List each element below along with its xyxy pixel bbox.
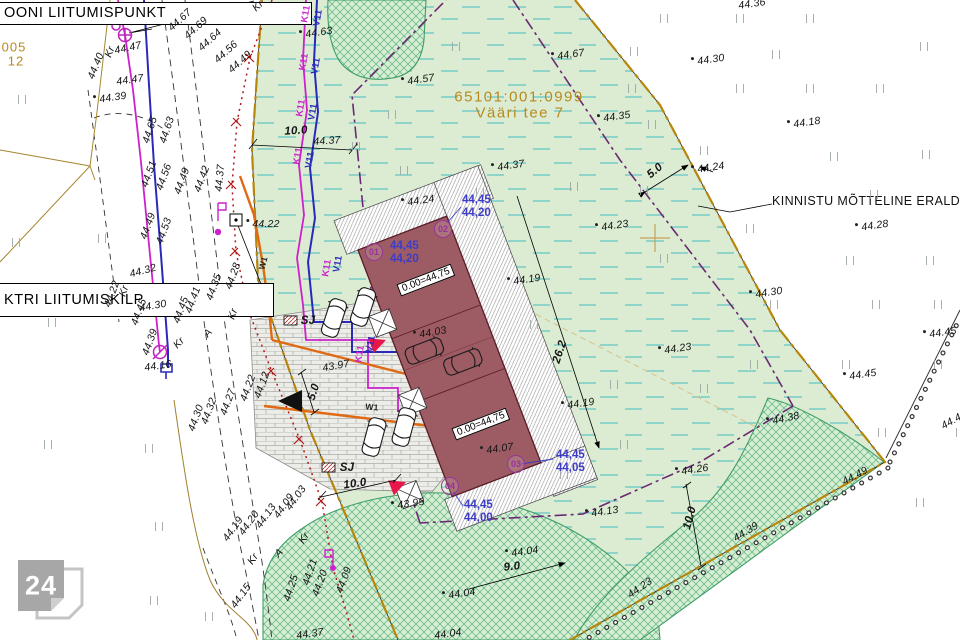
sj-marker-icon — [322, 463, 335, 472]
hydrant-icon — [161, 364, 172, 379]
road-lines — [0, 0, 272, 640]
site-plan-drawing — [0, 0, 960, 640]
junction-dot-icon — [215, 229, 221, 235]
connection-point-icon — [112, 22, 132, 42]
drain-flag-icon — [218, 203, 226, 221]
sj-marker-icon — [284, 316, 297, 325]
logo-24-shape — [18, 560, 82, 618]
site-plan: OONI LIITUMISPUNKT KTRI LIITUMISKILP KIN… — [0, 0, 960, 640]
